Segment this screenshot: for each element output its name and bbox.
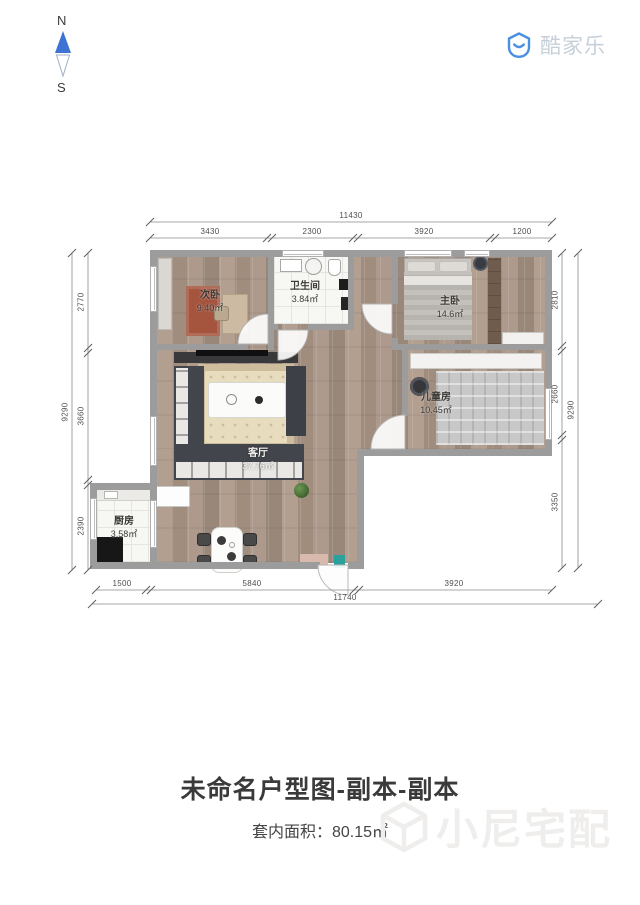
- logo-text: 酷家乐: [540, 30, 606, 60]
- logo-shield-icon: [506, 32, 532, 58]
- room-name: 主卧: [440, 296, 460, 307]
- dim-right-seg-2: 3350: [551, 493, 560, 512]
- fan: [473, 256, 488, 271]
- pillow: [407, 261, 436, 272]
- room-area: 14.6㎡: [437, 309, 464, 320]
- wall: [392, 256, 398, 304]
- room-master-bedroom-label: 主卧 14.6㎡: [437, 296, 464, 320]
- dim-bottom-seg-2: 3920: [445, 579, 464, 588]
- wall: [357, 449, 364, 569]
- dim-right-seg-1: 2660: [551, 385, 560, 404]
- dim-right-overall: 9290: [567, 401, 576, 420]
- window: [150, 266, 157, 312]
- window: [150, 416, 157, 466]
- dim-top-overall: 11430: [339, 211, 362, 220]
- wall: [150, 548, 157, 569]
- room-area: 10.45㎡: [420, 405, 452, 416]
- room-name: 卫生间: [290, 281, 320, 292]
- tray: [226, 394, 237, 405]
- watermark: 小尼宅配: [378, 796, 612, 857]
- shoe-cabinet: [334, 555, 345, 568]
- dining-chair: [197, 533, 211, 546]
- wall: [392, 344, 552, 350]
- coffee-table: [208, 382, 286, 418]
- dim-top-seg-1: 2300: [303, 227, 322, 236]
- room-area: 3.84㎡: [290, 294, 320, 305]
- entry-door-arc: [318, 565, 348, 595]
- dim-top-seg-0: 3430: [201, 227, 220, 236]
- kids-desk: [410, 353, 542, 369]
- interior-area-label: 套内面积：: [252, 824, 332, 841]
- fridge: [156, 486, 190, 507]
- kitchen-sink: [104, 491, 118, 499]
- kitchen-sliding-door: [150, 500, 157, 548]
- compass-south-label: S: [57, 80, 66, 95]
- pillow: [439, 261, 468, 272]
- sofa-cushions: [176, 462, 302, 478]
- room-area: 37.76㎡: [242, 461, 274, 472]
- window: [282, 250, 324, 257]
- room-name: 儿童房: [421, 392, 451, 403]
- dim-left-overall: 9290: [61, 403, 70, 422]
- wall: [156, 344, 248, 350]
- compass-needle-icon: [51, 30, 75, 78]
- wall: [90, 483, 156, 490]
- room-bathroom-label: 卫生间 3.84㎡: [290, 281, 320, 305]
- tv: [196, 350, 268, 356]
- room-name: 客厅: [248, 448, 268, 459]
- room-secondary-bedroom-label: 次卧 9.40㎡: [197, 290, 224, 314]
- wall: [348, 256, 354, 330]
- plate: [217, 536, 226, 545]
- plant: [294, 483, 309, 498]
- dim-left-seg-2: 2390: [77, 517, 86, 536]
- dim-left-seg-0: 2770: [77, 293, 86, 312]
- dim-bottom-overall: 11740: [333, 593, 356, 602]
- dim-top-seg-3: 1200: [513, 227, 532, 236]
- compass-north-label: N: [57, 13, 66, 28]
- armchair: [286, 366, 306, 436]
- room-name: 次卧: [200, 290, 220, 301]
- washing-machine: [305, 258, 322, 275]
- dim-right-seg-0: 2810: [551, 291, 560, 310]
- floor-plan-page: N S 酷家乐: [0, 0, 640, 905]
- room-area: 3.58㎡: [111, 529, 138, 540]
- window: [404, 250, 452, 257]
- window: [464, 250, 490, 257]
- wardrobe: [158, 258, 172, 330]
- wall: [402, 350, 408, 416]
- dim-left-seg-1: 3660: [77, 407, 86, 426]
- toilet: [328, 259, 341, 276]
- window: [90, 498, 97, 540]
- room-living-room-label: 客厅 37.76㎡: [242, 448, 274, 472]
- wall: [268, 256, 274, 330]
- wall: [268, 324, 278, 330]
- dim-bottom-seg-1: 5840: [243, 579, 262, 588]
- room-area: 9.40㎡: [197, 303, 224, 314]
- wall: [90, 562, 320, 569]
- dining-chair: [243, 533, 257, 546]
- wall: [150, 483, 157, 500]
- remote: [255, 396, 263, 404]
- bed-sheet: [404, 276, 472, 285]
- cup: [229, 542, 235, 548]
- dim-top-seg-2: 3920: [415, 227, 434, 236]
- watermark-text: 小尼宅配: [436, 796, 612, 857]
- watermark-cube-icon: [378, 801, 430, 853]
- room-kitchen-label: 厨房 3.58㎡: [111, 516, 138, 540]
- master-wardrobe: [488, 258, 501, 344]
- kujiale-logo: 酷家乐: [506, 30, 606, 60]
- wall: [357, 449, 552, 456]
- dim-bottom-seg-0: 1500: [113, 579, 132, 588]
- room-name: 厨房: [114, 516, 134, 527]
- stove: [97, 537, 123, 563]
- bathroom-sink: [280, 259, 302, 272]
- room-kids-room-label: 儿童房 10.45㎡: [420, 392, 452, 416]
- plate: [227, 552, 236, 561]
